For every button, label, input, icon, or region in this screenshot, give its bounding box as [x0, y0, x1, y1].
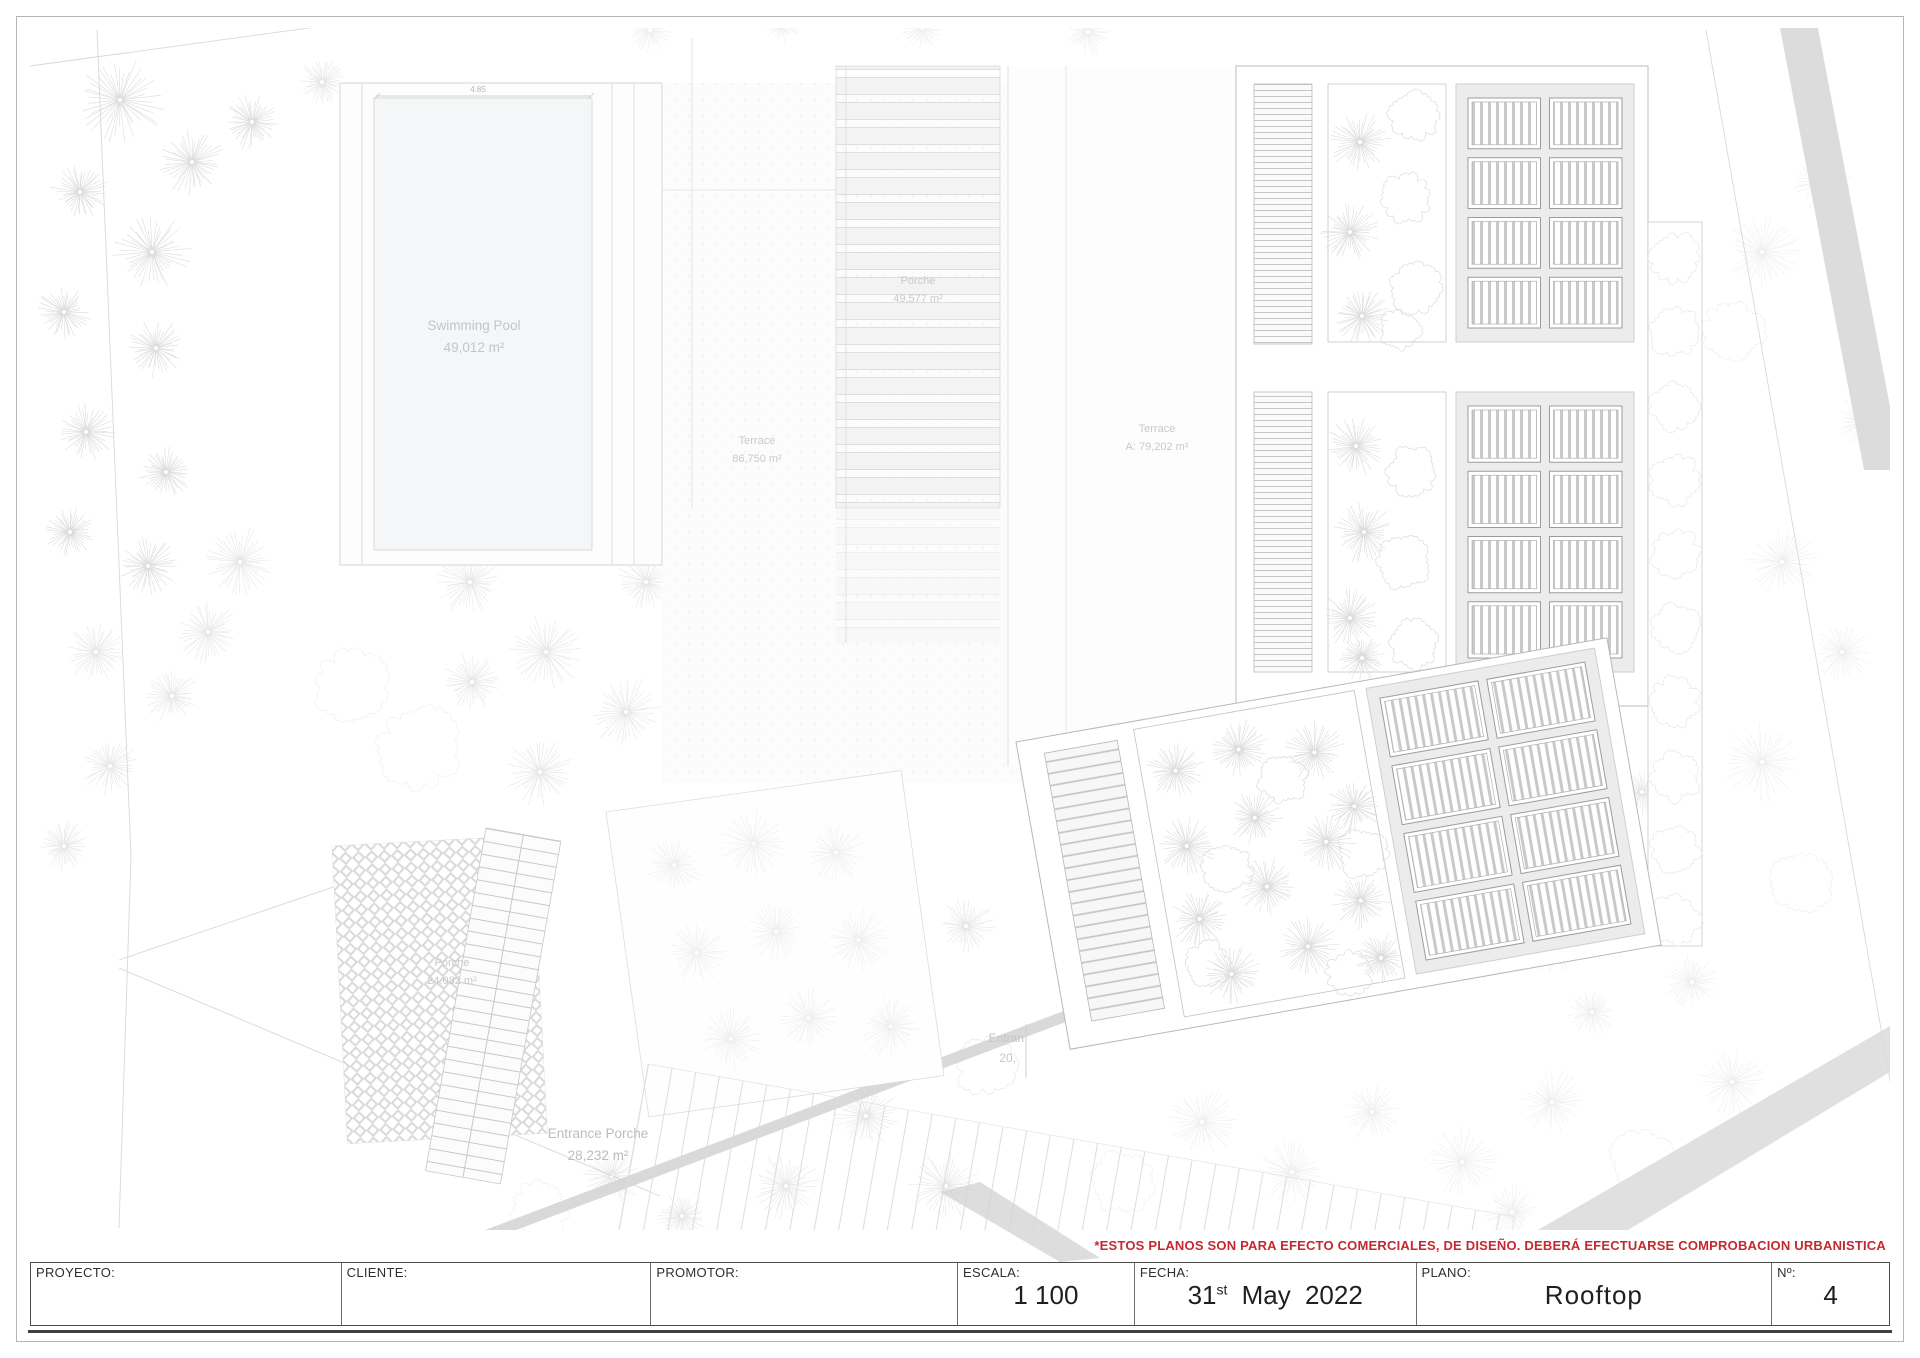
- road-band-bottom-right: [1538, 1026, 1890, 1230]
- titleblock-escala: ESCALA: 1 100: [957, 1263, 1134, 1325]
- titleblock-proyecto: PROYECTO:: [31, 1263, 341, 1325]
- plan-clipped-content: [30, 6, 1902, 1358]
- pergola-porche: [836, 66, 1000, 643]
- titleblock-promotor: PROMOTOR:: [650, 1263, 957, 1325]
- sheet-bottom-rule: [28, 1330, 1892, 1333]
- plano-label: PLANO:: [1422, 1265, 1471, 1280]
- terrace-a-area: A: 79,202 m²: [1126, 441, 1189, 453]
- entry-garden: [606, 771, 944, 1117]
- terrace-main-title: Terrace: [739, 435, 776, 447]
- pergola-porche-area: 49,577 m²: [893, 293, 943, 305]
- promotor-label: PROMOTOR:: [656, 1265, 739, 1280]
- terrace-main-area: 86,750 m²: [732, 453, 782, 465]
- titleblock-fecha: FECHA: 31st May 2022: [1134, 1263, 1416, 1325]
- fecha-rest: May 2022: [1227, 1280, 1362, 1310]
- entrance-porche-title: Entrance Porche: [548, 1126, 649, 1141]
- sheet: Swimming Pool 49,012 m² 4.85 Porche 49,5…: [0, 0, 1920, 1358]
- proyecto-label: PROYECTO:: [36, 1265, 115, 1280]
- entrance-porche-area: 28,232 m²: [568, 1148, 629, 1163]
- swimming-pool-title: Swimming Pool: [427, 318, 520, 333]
- titleblock-cliente: CLIENTE:: [341, 1263, 651, 1325]
- titleblock-numero: Nº: 4: [1771, 1263, 1889, 1325]
- planter-bed-2: [1328, 392, 1446, 672]
- side-planter-strip: [1648, 222, 1702, 946]
- pool-dimension-text: 4.85: [470, 85, 486, 94]
- fecha-day: 31: [1188, 1280, 1217, 1310]
- title-block: PROYECTO: CLIENTE: PROMOTOR: ESCALA: 1 1…: [30, 1262, 1890, 1326]
- plano-value: Rooftop: [1417, 1280, 1772, 1311]
- escala-value: 1 100: [958, 1280, 1134, 1311]
- disclaimer-text: *ESTOS PLANOS SON PARA EFECTO COMERCIALE…: [1094, 1238, 1886, 1253]
- planter-bed-1: [1328, 84, 1446, 342]
- titleblock-plano: PLANO: Rooftop: [1416, 1263, 1772, 1325]
- rooftop-plan-drawing: Swimming Pool 49,012 m² 4.85 Porche 49,5…: [0, 0, 1920, 1358]
- entry-porche-title: Porche: [435, 957, 470, 969]
- fecha-ordinal: st: [1216, 1281, 1227, 1297]
- entrance-clipped-title: Entran: [989, 1031, 1024, 1045]
- entrance-clipped-area: 20,: [999, 1051, 1016, 1065]
- escala-label: ESCALA:: [963, 1265, 1020, 1280]
- numero-label: Nº:: [1777, 1265, 1796, 1280]
- numero-value: 4: [1772, 1280, 1889, 1311]
- fecha-value: 31st May 2022: [1135, 1280, 1416, 1311]
- fecha-label: FECHA:: [1140, 1265, 1189, 1280]
- deck-stripes-1: [1254, 84, 1312, 344]
- swimming-pool-area: 49,012 m²: [444, 340, 505, 355]
- cliente-label: CLIENTE:: [347, 1265, 408, 1280]
- entry-porche-area: 24,082 m²: [427, 975, 477, 987]
- terrace-a-area: [1008, 66, 1236, 766]
- road-band-top-right: [1780, 28, 1902, 470]
- pergola-porche-title: Porche: [901, 275, 936, 287]
- terrace-a-title: Terrace: [1139, 423, 1176, 435]
- deck-stripes-2: [1254, 392, 1312, 672]
